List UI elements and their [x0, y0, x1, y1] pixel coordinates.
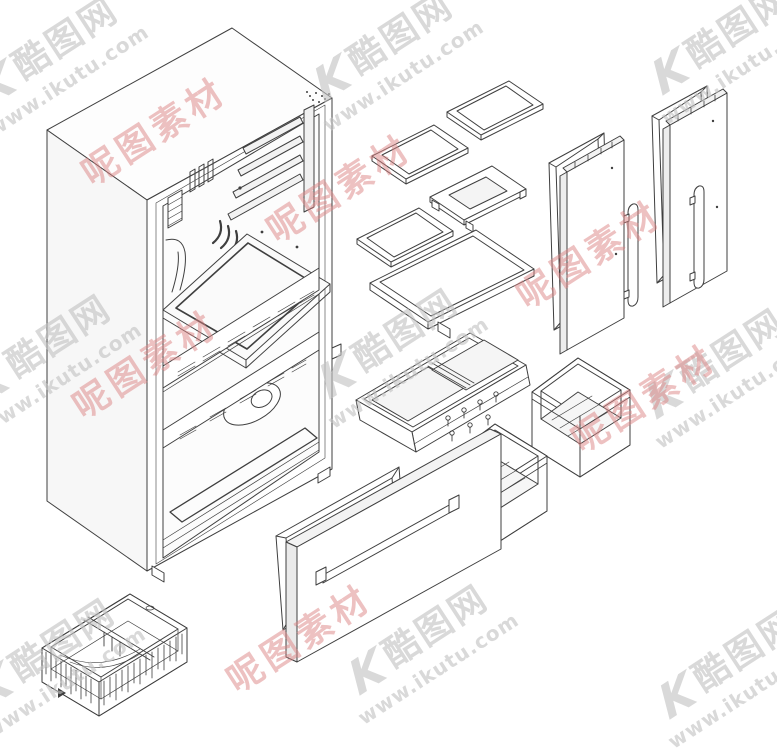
tray-shelf [430, 166, 526, 232]
left-door-assembly [549, 133, 638, 354]
freezer-basket [42, 594, 187, 716]
right-door-assembly [652, 86, 727, 307]
glass-shelf-1 [447, 81, 543, 140]
left-door-handle [624, 204, 638, 306]
exploded-refrigerator-diagram [0, 0, 777, 718]
diagram-stage: K酷图网 www.ikutu.com K酷图网 www.ikutu.com K酷… [0, 0, 777, 718]
refrigerator-cabinet [47, 28, 341, 582]
left-door [560, 136, 624, 354]
hinge-bracket [332, 344, 341, 359]
glass-shelf-2 [372, 125, 468, 184]
